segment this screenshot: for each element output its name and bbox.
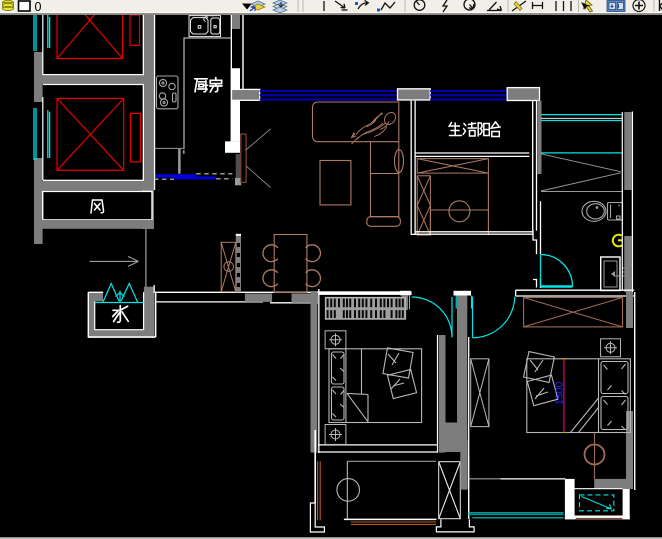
svg-text:1500: 1500 — [554, 381, 566, 405]
svg-text:0: 0 — [35, 0, 42, 14]
